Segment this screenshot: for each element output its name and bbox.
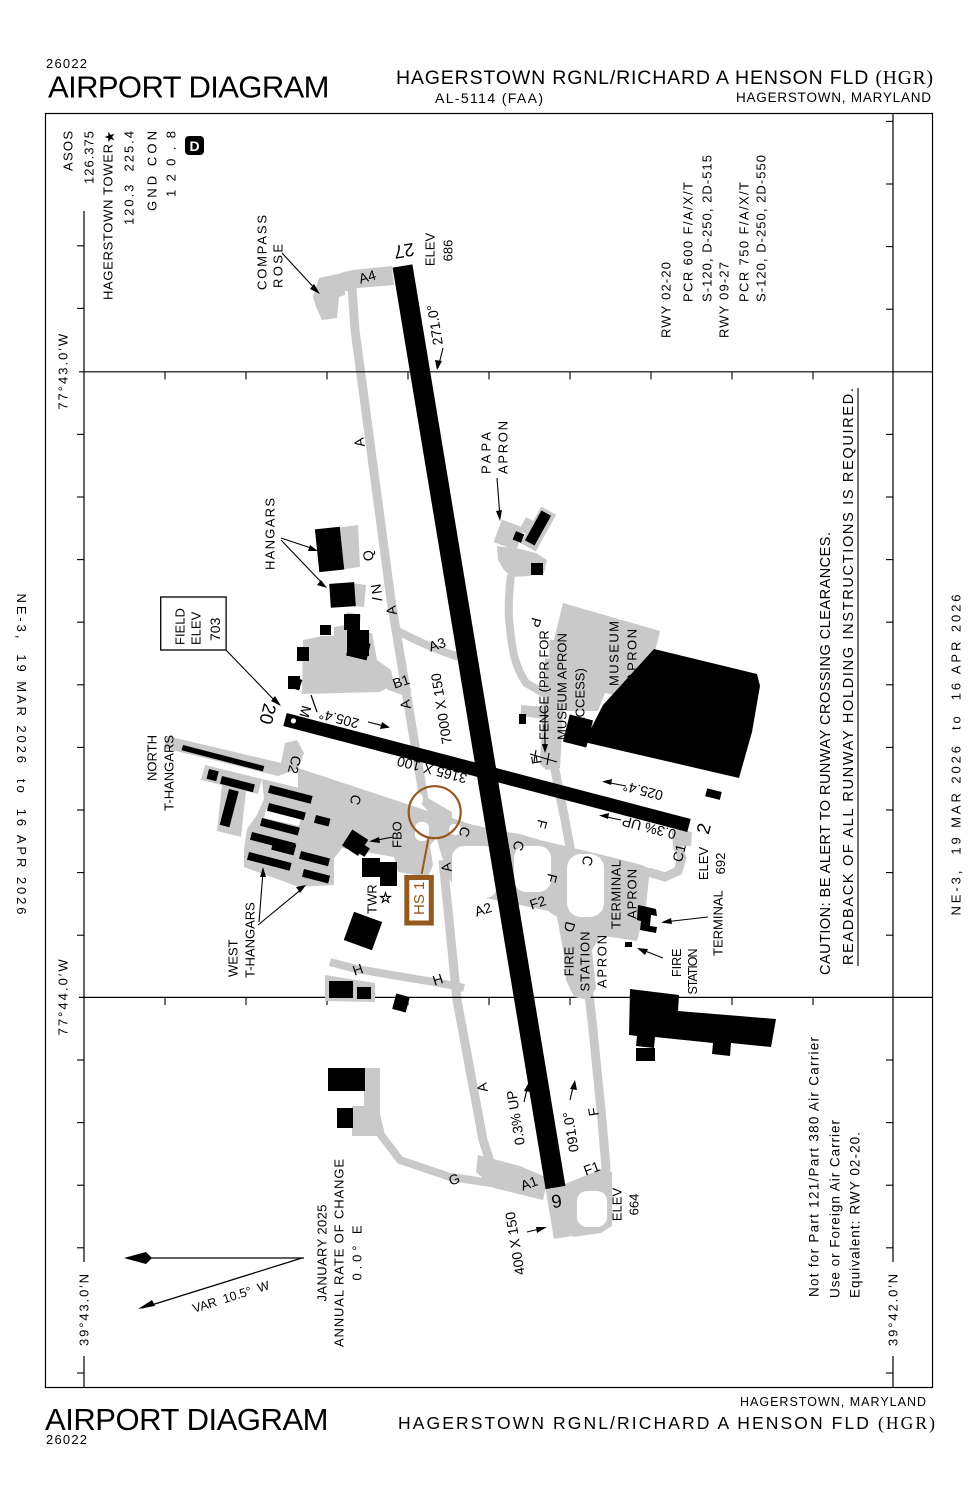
svg-text:AIRPORT DIAGRAM: AIRPORT DIAGRAM xyxy=(45,1402,328,1437)
svg-text:AIRPORT DIAGRAM: AIRPORT DIAGRAM xyxy=(48,70,329,105)
svg-text:PCR 750 F/A/X/T: PCR 750 F/A/X/T xyxy=(737,182,752,302)
svg-text:Equivalent: RWY 02-20.: Equivalent: RWY 02-20. xyxy=(848,1132,863,1298)
svg-text:77°43.0′W: 77°43.0′W xyxy=(56,333,71,410)
svg-text:ASOS: ASOS xyxy=(61,131,76,171)
svg-text:COMPASS: COMPASS xyxy=(255,215,270,290)
svg-text:ANNUAL RATE OF CHANGE: ANNUAL RATE OF CHANGE xyxy=(332,1159,347,1347)
svg-text:READBACK OF ALL RUNWAY HOLDING: READBACK OF ALL RUNWAY HOLDING INSTRUCTI… xyxy=(841,388,857,965)
svg-text:TWR: TWR xyxy=(365,884,380,914)
svg-text:HANGARS: HANGARS xyxy=(263,498,278,570)
svg-text:S-120, D-250, 2D-550: S-120, D-250, 2D-550 xyxy=(754,155,769,302)
svg-text:D: D xyxy=(189,138,199,154)
svg-text:FIRE: FIRE xyxy=(670,949,684,977)
svg-text:JANUARY 2025: JANUARY 2025 xyxy=(315,1205,330,1302)
svg-text:RWY 02-20: RWY 02-20 xyxy=(659,262,674,338)
svg-text:RWY 09-27: RWY 09-27 xyxy=(717,262,732,338)
svg-text:STATION: STATION xyxy=(686,949,700,995)
svg-text:FENCE (PPR FOR: FENCE (PPR FOR xyxy=(537,630,552,740)
svg-text:Use or Foreign Air Carrier: Use or Foreign Air Carrier xyxy=(828,1120,843,1299)
svg-text:HS 1: HS 1 xyxy=(411,882,428,915)
svg-text:ELEV: ELEV xyxy=(610,1188,625,1222)
svg-text:TERMINAL: TERMINAL xyxy=(711,890,726,956)
svg-text:AL-5114 (FAA): AL-5114 (FAA) xyxy=(435,90,543,106)
svg-text:HAGERSTOWN, MARYLAND: HAGERSTOWN, MARYLAND xyxy=(740,1395,926,1409)
svg-text:MUSEUM: MUSEUM xyxy=(607,621,622,686)
svg-text:APRON: APRON xyxy=(625,869,640,919)
svg-text:T-HANGARS: T-HANGARS xyxy=(162,735,177,811)
svg-text:HAGERSTOWN, MARYLAND: HAGERSTOWN, MARYLAND xyxy=(736,90,931,105)
svg-text:ELEV: ELEV xyxy=(423,233,438,267)
svg-text:664: 664 xyxy=(627,1194,642,1216)
svg-text:ACCESS): ACCESS) xyxy=(573,668,588,726)
svg-text:NORTH: NORTH xyxy=(145,735,160,781)
svg-text:ELEV: ELEV xyxy=(189,611,204,645)
svg-text:APRON: APRON xyxy=(595,935,610,988)
svg-text:27: 27 xyxy=(392,239,416,263)
svg-text:ELEV: ELEV xyxy=(696,847,711,881)
svg-text:T-HANGARS: T-HANGARS xyxy=(243,902,258,978)
svg-text:77°44.0′W: 77°44.0′W xyxy=(56,959,71,1036)
svg-text:692: 692 xyxy=(713,853,728,875)
svg-text:PCR 600 F/A/X/T: PCR 600 F/A/X/T xyxy=(681,182,696,302)
svg-text:686: 686 xyxy=(441,240,456,262)
svg-text:FBO: FBO xyxy=(390,821,405,848)
svg-text:703: 703 xyxy=(207,617,223,641)
svg-text:26022: 26022 xyxy=(46,1432,87,1447)
svg-text:126.375: 126.375 xyxy=(82,131,97,184)
svg-text:STATION: STATION xyxy=(578,932,593,992)
svg-text:APRON: APRON xyxy=(625,629,640,681)
svg-text:FIRE: FIRE xyxy=(562,946,577,976)
svg-text:CAUTION: BE ALERT TO RUNWAY CR: CAUTION: BE ALERT TO RUNWAY CROSSING CLE… xyxy=(818,532,834,975)
svg-text:MUSEUM APRON: MUSEUM APRON xyxy=(555,633,570,740)
svg-text:S-120, D-250, 2D-515: S-120, D-250, 2D-515 xyxy=(700,155,715,302)
svg-text:TERMINAL: TERMINAL xyxy=(609,860,624,929)
svg-text:WEST: WEST xyxy=(226,939,241,977)
svg-text:HAGERSTOWN TOWER: HAGERSTOWN TOWER xyxy=(101,144,116,300)
svg-text:Not for Part 121/Part 380 Air: Not for Part 121/Part 380 Air Carrier xyxy=(807,1037,822,1298)
svg-text:FIELD: FIELD xyxy=(173,608,188,645)
svg-text:HAGERSTOWN RGNL/RICHARD A HENS: HAGERSTOWN RGNL/RICHARD A HENSON FLD (HG… xyxy=(396,67,933,89)
svg-text:APRON: APRON xyxy=(496,421,511,474)
